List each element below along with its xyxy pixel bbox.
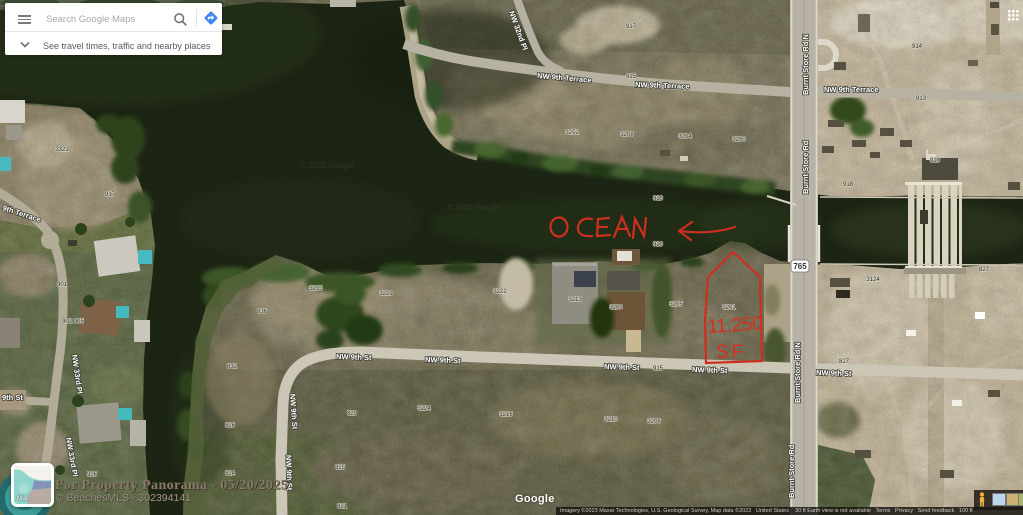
svg-text:3222: 3222 <box>493 289 507 295</box>
svg-text:821: 821 <box>337 504 348 510</box>
svg-text:Burnt Store Rd N: Burnt Store Rd N <box>793 342 802 403</box>
svg-text:3213: 3213 <box>568 297 582 303</box>
svg-text:824: 824 <box>225 471 236 477</box>
svg-text:© 2023 Google: © 2023 Google <box>300 161 354 170</box>
svg-text:NW 9th Terrace: NW 9th Terrace <box>635 80 690 91</box>
svg-text:3210: 3210 <box>604 417 618 423</box>
svg-text:Burnt Store Rd: Burnt Store Rd <box>801 140 810 194</box>
svg-text:826: 826 <box>225 423 236 429</box>
svg-text:3224: 3224 <box>417 406 431 412</box>
svg-text:919: 919 <box>653 242 664 248</box>
svg-text:11,250: 11,250 <box>707 313 763 338</box>
svg-text:3233: 3233 <box>309 286 323 292</box>
svg-text:913: 913 <box>916 96 927 102</box>
svg-text:SF: SF <box>716 342 746 363</box>
svg-text:3272: 3272 <box>565 130 579 136</box>
svg-text:917: 917 <box>626 24 637 30</box>
svg-text:3321: 3321 <box>55 147 69 153</box>
svg-text:901: 901 <box>57 282 68 288</box>
svg-text:3205: 3205 <box>669 302 683 308</box>
svg-text:NW 9th St: NW 9th St <box>816 368 852 378</box>
svg-text:825: 825 <box>335 465 346 471</box>
svg-text:3209: 3209 <box>609 305 623 311</box>
svg-text:9th St: 9th St <box>2 393 23 402</box>
svg-text:902 905: 902 905 <box>62 319 84 325</box>
svg-text:3229: 3229 <box>379 291 393 297</box>
svg-text:829: 829 <box>347 411 358 417</box>
svg-text:915: 915 <box>626 74 637 80</box>
svg-text:832: 832 <box>227 364 238 370</box>
svg-text:© 2023 Google: © 2023 Google <box>447 203 501 212</box>
svg-text:NW 9th St: NW 9th St <box>425 355 461 365</box>
svg-text:3201: 3201 <box>722 305 736 311</box>
svg-text:836: 836 <box>257 309 268 315</box>
svg-text:914: 914 <box>912 44 923 50</box>
svg-text:NW 9th St: NW 9th St <box>336 352 372 362</box>
svg-text:919: 919 <box>653 196 664 202</box>
svg-text:827: 827 <box>839 359 850 365</box>
svg-text:Burnt Store Rd N: Burnt Store Rd N <box>801 34 810 95</box>
svg-text:917: 917 <box>105 192 116 198</box>
svg-text:3200: 3200 <box>732 137 746 143</box>
svg-text:915: 915 <box>653 366 664 372</box>
svg-text:NW 9th St: NW 9th St <box>692 365 728 375</box>
svg-text:3208: 3208 <box>620 132 634 138</box>
svg-text:NW 9th Terrace: NW 9th Terrace <box>824 85 878 94</box>
svg-text:3206: 3206 <box>647 419 661 425</box>
svg-text:3124: 3124 <box>866 277 880 283</box>
svg-text:765: 765 <box>793 262 807 271</box>
svg-text:3216: 3216 <box>499 412 513 418</box>
svg-text:Burnt Store Rd: Burnt Store Rd <box>787 444 796 498</box>
svg-text:827: 827 <box>979 267 990 273</box>
svg-text:3204: 3204 <box>678 134 692 140</box>
svg-text:910: 910 <box>930 158 941 164</box>
svg-text:918: 918 <box>843 182 854 188</box>
svg-text:NW 9th St: NW 9th St <box>604 362 640 372</box>
